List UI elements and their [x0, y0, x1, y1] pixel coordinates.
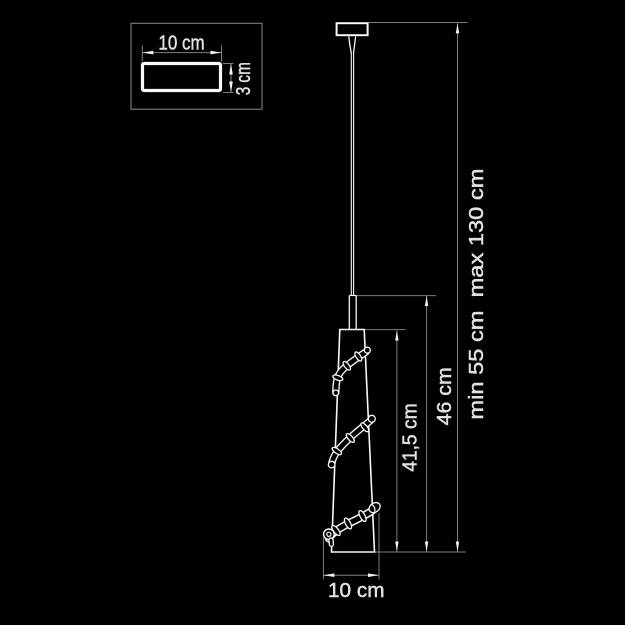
svg-text:3 cm: 3 cm: [233, 62, 255, 95]
svg-text:10 cm: 10 cm: [328, 580, 385, 602]
svg-text:min 55 cm max 130 cm: min 55 cm max 130 cm: [466, 169, 488, 420]
svg-text:10 cm: 10 cm: [158, 32, 204, 54]
svg-text:41,5 cm: 41,5 cm: [400, 403, 422, 471]
svg-text:46 cm: 46 cm: [434, 367, 456, 425]
